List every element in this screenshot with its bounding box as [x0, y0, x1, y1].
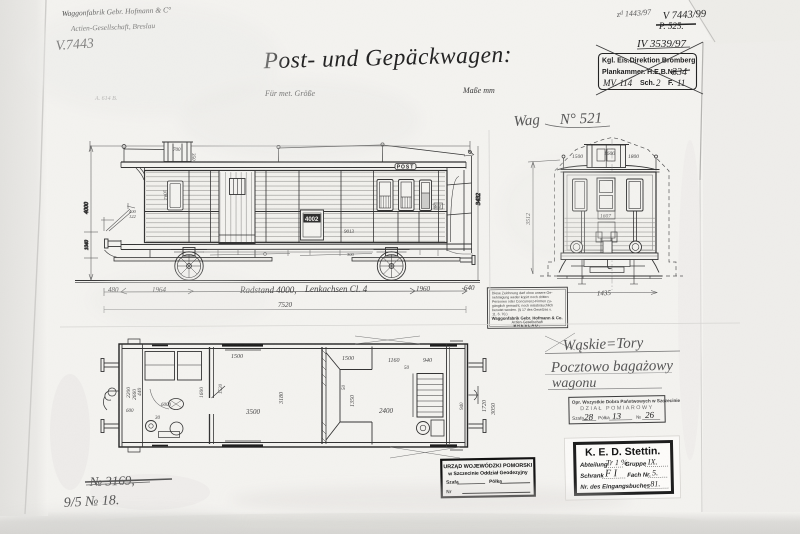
svg-text:Plankammer. H.E.B.Nr.: Plankammer. H.E.B.Nr.: [602, 69, 677, 76]
svg-text:7520: 7520: [278, 301, 293, 309]
svg-text:P. 525.: P. 525.: [658, 21, 684, 31]
svg-text:464: 464: [434, 204, 442, 209]
svg-text:50: 50: [404, 366, 410, 371]
svg-text:1160: 1160: [388, 358, 400, 364]
svg-text:640: 640: [464, 284, 475, 292]
svg-text:F.: F.: [668, 80, 674, 87]
svg-text:600: 600: [126, 409, 134, 414]
svg-text:1350: 1350: [350, 395, 356, 407]
svg-text:Tr 1 %: Tr 1 %: [606, 458, 628, 467]
svg-text:Lenkachsen Cl. 4: Lenkachsen Cl. 4: [304, 284, 368, 294]
svg-text:440: 440: [136, 388, 143, 397]
svg-text:Fach Nr.: Fach Nr.: [627, 472, 651, 479]
svg-text:5.: 5.: [652, 468, 658, 477]
svg-text:26: 26: [645, 410, 655, 420]
svg-text:Półka: Półka: [598, 415, 610, 420]
svg-text:Szafa: Szafa: [446, 480, 459, 486]
svg-text:6000: 6000: [161, 403, 172, 408]
svg-text:1720: 1720: [482, 400, 488, 412]
svg-text:81.: 81.: [650, 479, 660, 488]
svg-text:334: 334: [671, 67, 687, 78]
svg-text:30: 30: [155, 416, 161, 421]
svg-text:1500: 1500: [342, 356, 354, 362]
svg-text:Gruppe: Gruppe: [625, 461, 647, 467]
svg-text:3500: 3500: [245, 408, 261, 416]
svg-text:940: 940: [423, 357, 432, 364]
svg-text:1040: 1040: [85, 240, 90, 251]
svg-text:Wag: Wag: [513, 112, 541, 130]
svg-text:1520: 1520: [219, 384, 224, 395]
svg-text:Szafa: Szafa: [572, 416, 584, 421]
svg-text:3050: 3050: [491, 403, 497, 416]
svg-text:300: 300: [347, 252, 355, 257]
svg-text:POST: POST: [397, 164, 415, 170]
svg-text:2: 2: [656, 78, 661, 88]
svg-text:3432: 3432: [475, 193, 482, 206]
svg-text:4000: 4000: [83, 202, 90, 214]
svg-text:1960: 1960: [416, 285, 431, 293]
svg-text:V 7443/99: V 7443/99: [663, 9, 708, 22]
svg-text:1600: 1600: [604, 151, 615, 157]
svg-text:9/5 № 18.: 9/5 № 18.: [63, 493, 119, 511]
svg-text:3180: 3180: [279, 392, 285, 405]
svg-text:Sch.: Sch.: [640, 80, 655, 87]
svg-text:F I: F I: [604, 468, 618, 479]
svg-text:940: 940: [460, 402, 465, 410]
svg-text:Półka: Półka: [489, 479, 502, 485]
svg-text:1500: 1500: [231, 354, 243, 360]
svg-text:1500: 1500: [572, 154, 583, 160]
svg-text:Abteilung: Abteilung: [579, 462, 608, 469]
svg-text:700: 700: [173, 148, 181, 153]
svg-text:IX.: IX.: [647, 457, 658, 466]
svg-text:1800: 1800: [628, 154, 639, 160]
svg-text:N° 521: N° 521: [559, 111, 603, 129]
svg-text:Maße mm: Maße mm: [462, 86, 495, 95]
svg-text:50: 50: [342, 385, 347, 391]
svg-text:2400: 2400: [379, 407, 394, 415]
svg-text:№: №: [636, 415, 641, 420]
svg-text:Kgl. Eis.Direktion Bromberg: Kgl. Eis.Direktion Bromberg: [602, 58, 695, 65]
svg-text:Wąskie=Tory: Wąskie=Tory: [563, 335, 644, 354]
svg-text:122: 122: [129, 214, 137, 219]
svg-text:1435: 1435: [597, 289, 612, 298]
svg-text:13: 13: [612, 411, 622, 421]
svg-text:Schrank: Schrank: [580, 473, 604, 480]
svg-text:4002: 4002: [305, 217, 319, 223]
svg-text:9013: 9013: [344, 230, 355, 235]
svg-text:1600: 1600: [199, 387, 205, 398]
svg-text:350: 350: [190, 153, 195, 161]
